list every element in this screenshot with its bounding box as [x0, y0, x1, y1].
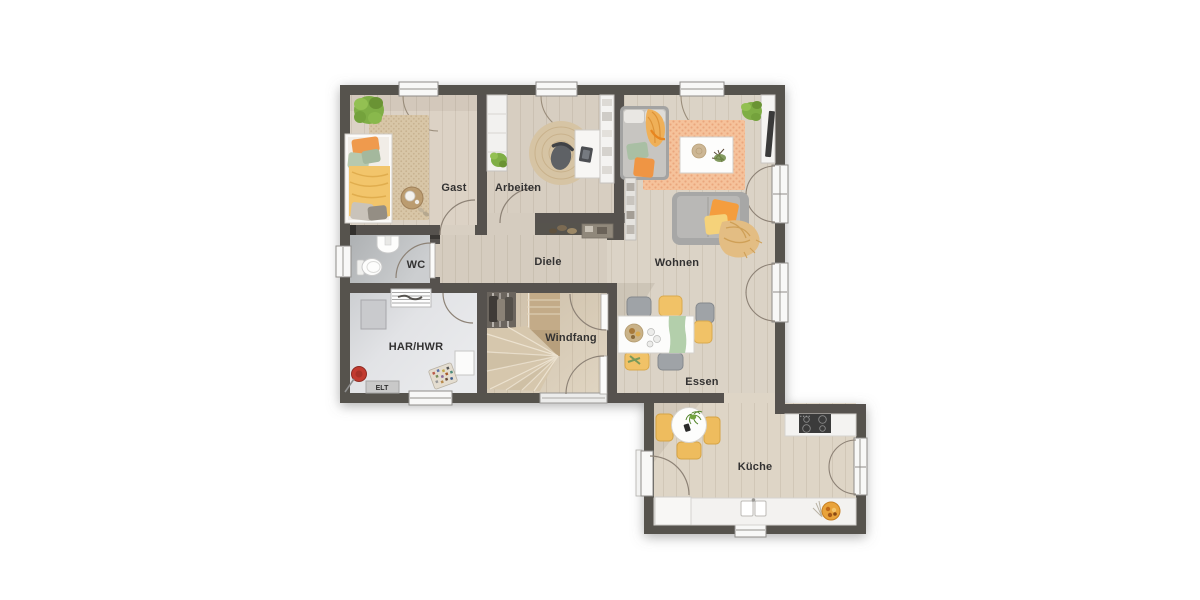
- svg-text:ELT: ELT: [376, 385, 389, 392]
- svg-text:Küche: Küche: [738, 461, 773, 473]
- svg-text:Diele: Diele: [534, 256, 561, 268]
- svg-text:HAR/HWR: HAR/HWR: [389, 341, 444, 353]
- svg-text:Gast: Gast: [441, 182, 466, 194]
- svg-text:Essen: Essen: [685, 376, 718, 388]
- svg-text:WC: WC: [407, 259, 426, 271]
- svg-text:Wohnen: Wohnen: [655, 257, 699, 269]
- svg-text:Windfang: Windfang: [545, 332, 597, 344]
- svg-text:Arbeiten: Arbeiten: [495, 182, 541, 194]
